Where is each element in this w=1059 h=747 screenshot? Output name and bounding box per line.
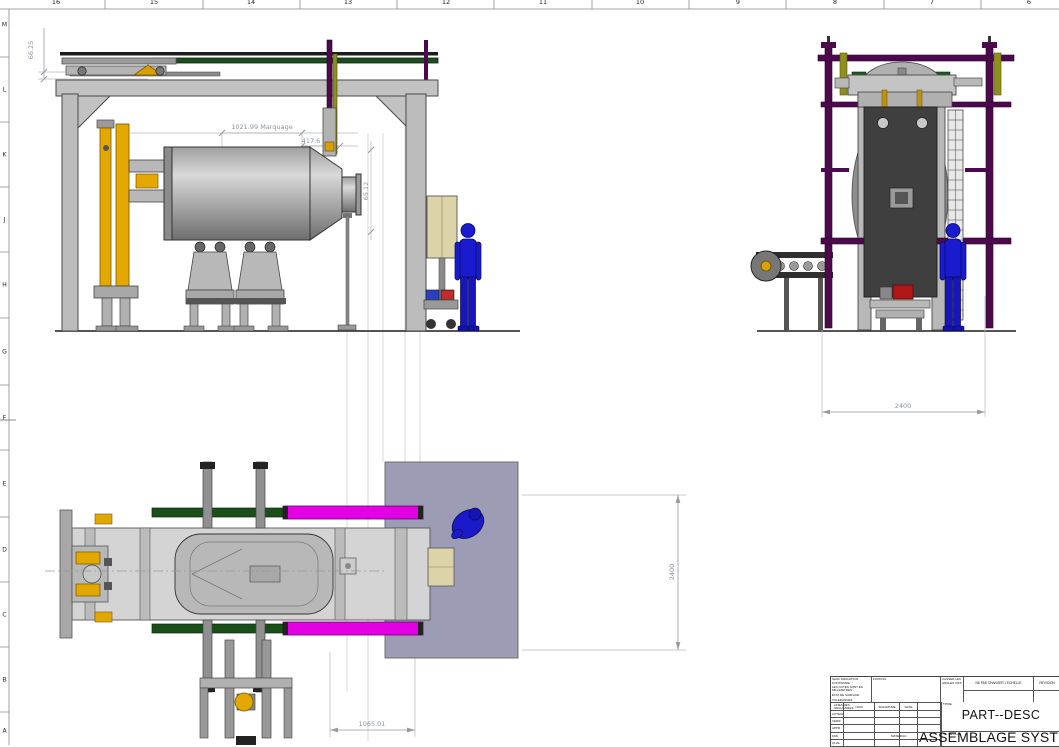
conveyor — [751, 251, 833, 330]
ruler-number: 11 — [539, 0, 547, 6]
table-cell — [844, 733, 875, 740]
table-cell — [918, 711, 941, 718]
deburr-note: CASSER LES ANGLES VIFS — [941, 677, 963, 687]
table-cell — [900, 718, 918, 725]
loader-arm-top — [72, 546, 112, 602]
column-header-date: DATE — [900, 703, 918, 711]
ruler-number: 16 — [52, 0, 60, 6]
ruler-number: 6 — [1027, 0, 1031, 6]
title-cell: TITRE: PART--DESC — [941, 702, 1059, 732]
table-cell — [918, 718, 941, 725]
row-label-verif: VERIF. — [831, 718, 844, 725]
scale-note-cell: NE PAS CHANGER L'ECHELLE — [964, 677, 1034, 702]
drawing-canvas: { "sheet": { "ruler_top": { "numbers": [… — [0, 0, 1059, 745]
ruler-letter: E — [0, 481, 9, 488]
ruler-top: 16 15 14 13 12 11 10 9 8 7 6 — [0, 0, 1059, 9]
floor-post-top — [340, 558, 356, 574]
dimension-65-12: 65.12 — [363, 182, 370, 201]
loader-arm — [94, 120, 173, 331]
ruler-letter: C — [0, 612, 9, 619]
marquage-unit-top — [200, 640, 292, 745]
ruler-number: 13 — [344, 0, 352, 6]
table-cell — [844, 725, 875, 732]
marquage-mast — [323, 40, 337, 156]
ruler-letter: D — [0, 547, 9, 554]
row-label-appr: APPR. — [831, 725, 844, 732]
drum-cylinder — [164, 147, 361, 240]
side-elevation-view — [740, 28, 1030, 338]
ruler-letter: F — [0, 415, 9, 422]
plan-view — [40, 450, 660, 745]
control-cabinet-top — [428, 548, 454, 586]
column-header-name: NOM — [844, 703, 875, 711]
operator-figure — [455, 224, 481, 332]
ruler-number: 9 — [736, 0, 740, 6]
table-cell — [900, 725, 918, 732]
front-elevation-view — [40, 28, 510, 338]
table-cell — [844, 740, 875, 747]
ruler-letter: G — [0, 349, 9, 356]
ruler-letter: L — [0, 87, 9, 94]
table-cell — [900, 740, 918, 747]
ruler-letter: A — [0, 728, 9, 735]
title-label: TITRE: — [942, 702, 1059, 708]
control-cabinet — [424, 196, 458, 329]
drawing-number-value: ASSEMBLAGE SYSTEME CO — [919, 729, 1059, 745]
drum-top — [175, 534, 333, 614]
deburr-cell: CASSER LES ANGLES VIFS — [941, 677, 964, 702]
tolerance-note-cell: SAUF INDICATION CONTRAIRE: LES COTES SON… — [831, 677, 872, 702]
ruler-number: 8 — [833, 0, 837, 6]
row-label-auteur: AUTEUR — [831, 711, 844, 718]
ruler-letter: K — [0, 152, 9, 159]
table-cell — [900, 711, 918, 718]
column-header-signature: SIGNATURE — [875, 703, 900, 711]
dimension-marquage: 1021.99 Marquage — [231, 124, 292, 131]
finish-cell: FINITION: — [872, 677, 941, 702]
support-stands — [184, 242, 288, 331]
title-block: SAUF INDICATION CONTRAIRE: LES COTES SON… — [830, 676, 1059, 747]
table-cell — [918, 703, 941, 711]
ruler-number: 14 — [247, 0, 255, 6]
table-cell — [875, 711, 900, 718]
table-cell — [831, 703, 844, 711]
ruler-letter: H — [0, 282, 9, 289]
finish-label: FINITION: — [872, 677, 940, 683]
scale-note: NE PAS CHANGER L'ECHELLE — [964, 677, 1033, 691]
ruler-number: 15 — [150, 0, 158, 6]
drum-cover-panel — [864, 107, 937, 297]
table-cell — [875, 725, 900, 732]
revision-label: REVISION — [1034, 677, 1059, 691]
ruler-letter: B — [0, 677, 9, 684]
ruler-letter: J — [0, 217, 9, 224]
row-label-qual: QUAL. — [831, 740, 844, 747]
dimension-1065-01: 1065.01 — [359, 721, 386, 728]
ruler-letter: M — [0, 22, 9, 29]
ruler-number: 10 — [636, 0, 644, 6]
ruler-number: 12 — [442, 0, 450, 6]
table-cell — [875, 718, 900, 725]
dimension-2400-plan: 2400 — [669, 564, 676, 581]
table-cell — [844, 718, 875, 725]
ruler-left: M L K J H G F E D C B A — [0, 0, 9, 745]
dimension-66-25: 66.25 — [28, 41, 35, 60]
row-label-fab: FAB. — [831, 733, 844, 740]
table-cell — [844, 711, 875, 718]
dimension-417-6: 417.6 — [302, 138, 321, 145]
part-description: PART--DESC — [942, 708, 1059, 722]
ruler-number: 7 — [930, 0, 934, 6]
floor-post — [338, 213, 356, 330]
revision-cell: REVISION — [1034, 677, 1059, 702]
material-label: MATERIAU: — [891, 734, 907, 738]
table-cell — [875, 740, 900, 747]
dimension-2400-side: 2400 — [895, 403, 912, 410]
trunnion-crossbeam — [835, 62, 982, 108]
